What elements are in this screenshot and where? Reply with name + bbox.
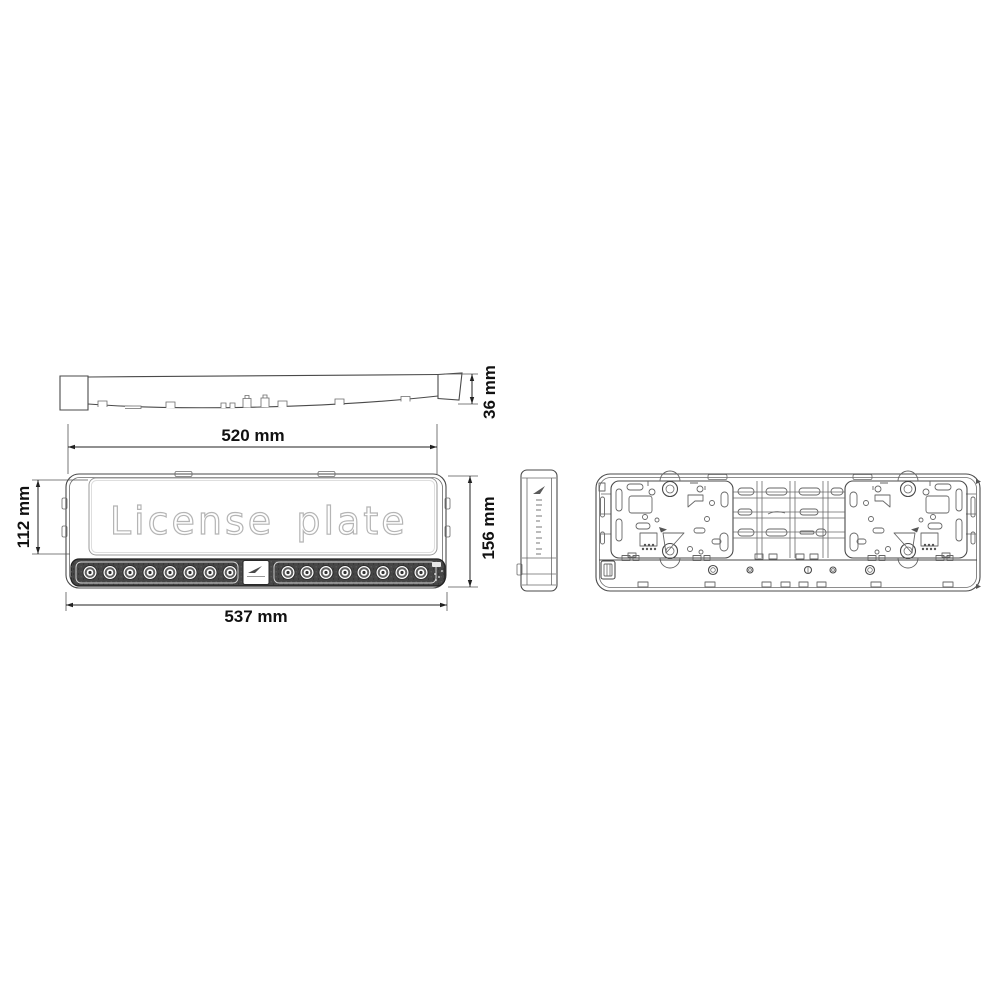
dimension-label-520mm: 520 mm (221, 426, 284, 445)
dimension-total-width: 537 mm (66, 592, 447, 626)
dimension-label-537mm: 537 mm (224, 607, 287, 626)
technical-drawing-canvas: 36 mm 520 mm License plate (0, 0, 1000, 1000)
drawing-svg: 36 mm 520 mm License plate (0, 0, 1000, 1000)
rear-central-ribs (733, 481, 845, 559)
rear-panel-right (845, 471, 967, 568)
front-view: License plate (62, 472, 450, 589)
center-badge (243, 561, 269, 585)
plate-embossed-text-word1: License (110, 499, 274, 543)
dimension-total-height: 156 mm (448, 476, 498, 587)
rear-panel-left (611, 471, 733, 568)
brand-swoosh-icon (533, 486, 545, 494)
side-brand-marking (536, 500, 542, 554)
rear-bottom-strip (599, 556, 977, 588)
side-view (517, 470, 557, 591)
dimension-label-36mm: 36 mm (480, 365, 499, 419)
dimension-label-112mm: 112 mm (14, 486, 33, 548)
led-strip (71, 559, 445, 586)
rear-connector (601, 561, 615, 579)
dimension-plate-height: 112 mm (14, 480, 88, 554)
dimension-inner-width: 520 mm (68, 424, 437, 474)
plate-embossed-text-word2: plate (296, 499, 407, 543)
rear-view (596, 471, 981, 591)
plate-window: License plate (89, 478, 437, 555)
dimension-label-156mm: 156 mm (479, 496, 498, 559)
top-profile-view (60, 373, 462, 410)
